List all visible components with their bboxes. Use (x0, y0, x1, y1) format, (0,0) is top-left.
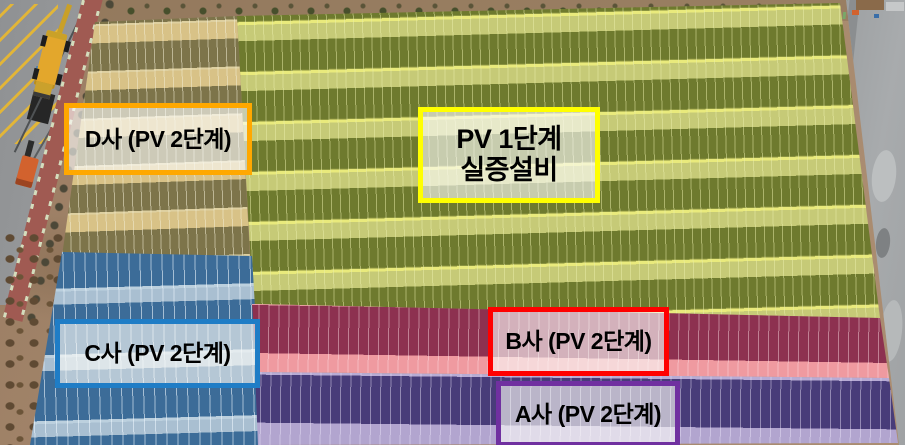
label-company-d: D사 (PV 2단계) (64, 103, 252, 175)
stacked-materials (886, 2, 904, 11)
label-company-c: C사 (PV 2단계) (55, 319, 260, 388)
crane-truck-cab (33, 81, 53, 100)
label-company-b-text: B사 (PV 2단계) (505, 328, 651, 354)
label-company-a: A사 (PV 2단계) (496, 381, 680, 445)
stacked-materials (856, 0, 884, 10)
label-company-b: B사 (PV 2단계) (488, 307, 669, 376)
label-pv-phase1: PV 1단계 실증설비 (418, 107, 600, 203)
label-company-c-text: C사 (PV 2단계) (84, 340, 230, 366)
label-pv-phase1-line1: PV 1단계 (456, 124, 561, 155)
label-pv-phase1-line2: 실증설비 (460, 155, 557, 186)
aerial-site-photo: D사 (PV 2단계) PV 1단계 실증설비 C사 (PV 2단계) B사 (… (0, 0, 905, 445)
safety-barrier (874, 14, 879, 18)
gravel-patch (869, 149, 898, 203)
label-company-d-text: D사 (PV 2단계) (85, 126, 231, 152)
label-company-a-text: A사 (PV 2단계) (515, 401, 661, 427)
gravel-patch (874, 227, 891, 258)
safety-barrier (852, 10, 859, 15)
